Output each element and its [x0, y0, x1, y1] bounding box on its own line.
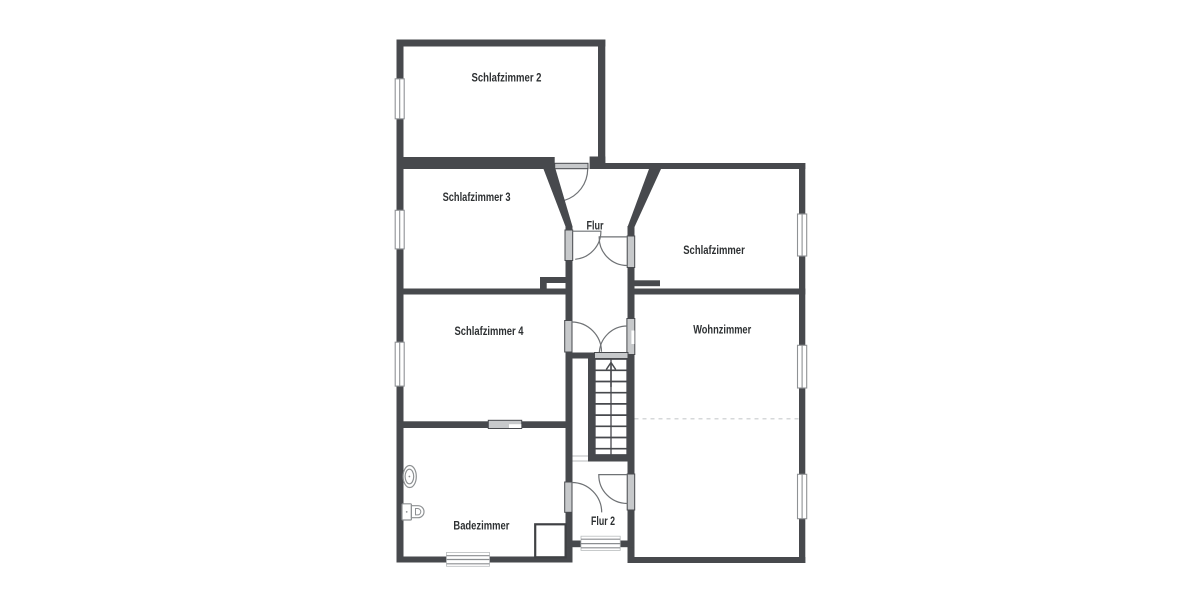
- svg-text:Schlafzimmer 2: Schlafzimmer 2: [472, 71, 542, 85]
- svg-text:Wohnzimmer: Wohnzimmer: [693, 323, 751, 337]
- svg-text:Badezimmer: Badezimmer: [453, 518, 509, 532]
- svg-text:Schlafzimmer 3: Schlafzimmer 3: [443, 190, 511, 204]
- svg-text:Schlafzimmer: Schlafzimmer: [683, 243, 745, 257]
- svg-text:Schlafzimmer 4: Schlafzimmer 4: [455, 324, 524, 338]
- svg-text:Flur 2: Flur 2: [591, 514, 615, 528]
- svg-text:Flur: Flur: [587, 219, 604, 233]
